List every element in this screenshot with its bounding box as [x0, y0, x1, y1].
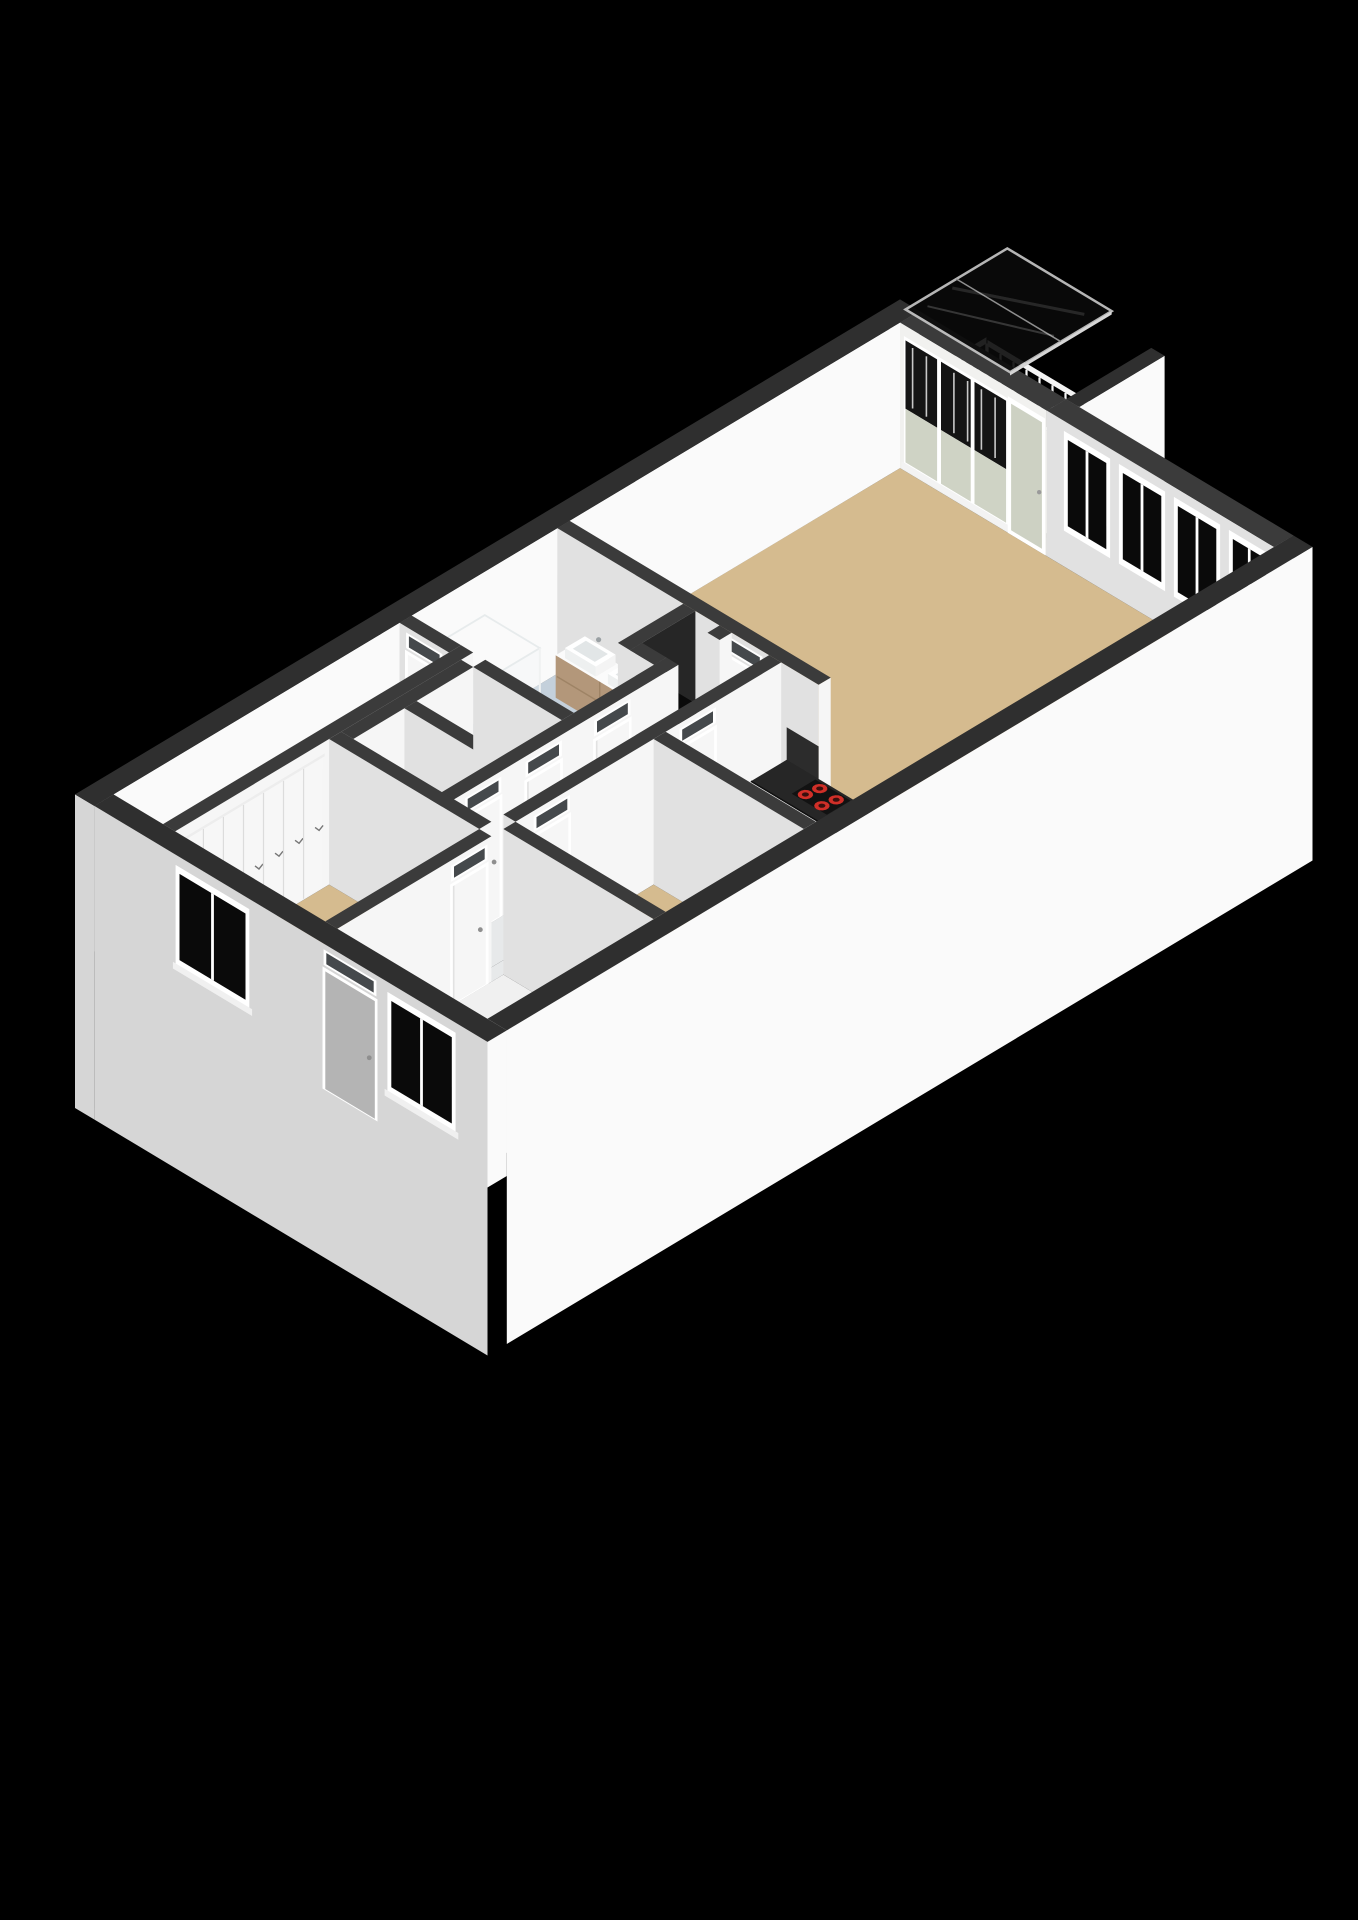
- window-mullion: [420, 1018, 423, 1106]
- window-mullion: [1086, 451, 1089, 539]
- closet-door: [284, 769, 303, 911]
- window-mullion: [1196, 517, 1199, 605]
- balcony-door-glass: [1011, 404, 1042, 549]
- closet-door: [304, 757, 323, 899]
- window-mullion: [1141, 484, 1144, 572]
- floor-plan-3d-render: [0, 0, 1358, 1920]
- cooktop-burner-center: [833, 798, 840, 802]
- door-handle: [492, 860, 497, 865]
- window-mullion: [211, 893, 214, 981]
- facade-nw-sw-face: [75, 794, 94, 1119]
- floor-plan-stage: [0, 0, 1358, 1920]
- facade-sw-se-face: [488, 1030, 507, 1187]
- door-panel: [453, 867, 486, 1004]
- glazing-mullion: [937, 358, 941, 485]
- door-edge: [453, 885, 455, 1004]
- faucet: [596, 637, 601, 642]
- glazing-mullion: [971, 378, 975, 505]
- door-handle: [478, 927, 483, 932]
- balcony-door-handle: [1037, 490, 1041, 494]
- door-handle: [367, 1055, 372, 1060]
- cooktop-burner-center: [816, 787, 823, 791]
